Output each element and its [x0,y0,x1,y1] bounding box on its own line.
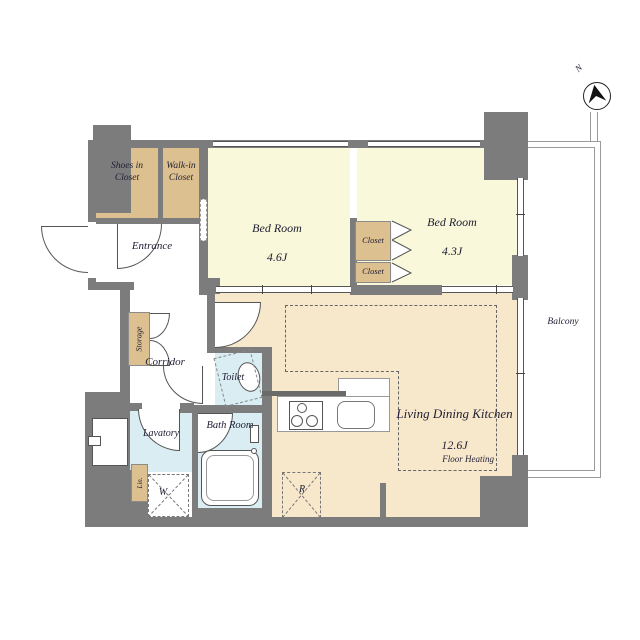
floor-heating-boundary [285,305,286,372]
slide-tick [262,285,263,294]
toilet-door-arc [163,366,203,404]
floor-plan: Closet Closet Storage Lin. [0,0,640,640]
slide-tick [311,285,312,294]
north-compass-icon [583,82,611,110]
bedroom2-size: 4.3J [392,244,512,259]
shoes-closet-label: Shoes in Closet [96,161,158,184]
window-bedroom2-balcony [517,178,524,256]
closet-lower-box: Closet [355,262,391,283]
wall-pillar-top-right [484,112,528,180]
wall-lavatory-top-right [180,403,194,413]
window-tick [516,214,525,215]
closet-upper-box: Closet [355,221,391,261]
entrance-door-arc [41,226,88,273]
wall-right-upper-block [512,255,528,300]
wall-bottom-stub [380,483,386,517]
wall-bottom [148,517,528,527]
sliding-door-bedroom2 [442,286,513,293]
stove-burner [297,403,307,413]
floor-heating-boundary [398,470,497,471]
window-bedroom1-top [213,141,348,147]
bathtub-inner [206,455,254,501]
floor-heating-boundary [285,305,497,306]
wall-wet-right [262,347,272,517]
bedroom1-name: Bed Room [217,221,337,236]
washer-label: W [147,487,179,499]
sliding-door-bedroom1 [216,286,351,293]
ldk-door-leaf [215,302,261,303]
stove-burner [306,415,318,427]
ldk-name: Living Dining Kitchen [347,406,562,422]
window-bedroom2-top [368,141,480,147]
bath-door-leaf [198,413,233,414]
kitchen-partition [262,391,346,396]
balcony-rail-link [597,112,598,142]
refrigerator-label: R [283,484,321,496]
stove-burner [291,415,303,427]
wall-left-jog [88,282,134,290]
wall-bath-bottom [192,508,266,517]
closet-lower-label: Closet [356,266,390,276]
closet-upper-label: Closet [356,235,390,245]
north-label: N [569,58,590,78]
bedroom1-size: 4.6J [217,250,337,265]
bedroom2-label: Bed Room 4.3J [392,200,512,273]
vanity-faucet-icon [88,436,101,446]
entrance-label: Entrance [104,240,200,253]
bedroom2-name: Bed Room [392,215,512,230]
wall-corner-block [480,476,528,527]
lavatory-label: Lavatory [130,428,192,440]
toilet-door-leaf [202,366,203,404]
bath-room-label: Bath Room [198,420,262,433]
wall-closets-bottom [350,285,442,295]
linen-box: Lin. [131,464,148,502]
toilet-label: Toilet [205,372,261,384]
floor-heating-label: Floor Heating [396,454,494,465]
storage-door-arc-upper [150,313,170,339]
storage-label: Storage [135,327,144,352]
slide-tick [496,285,497,294]
walk-in-closet-door [200,199,207,241]
window-tick [516,373,525,374]
bedroom1-label: Bed Room 4.6J [217,206,337,279]
entrance-door-opening [88,222,96,278]
entrance-door-leaf [41,226,88,227]
floor-heating-boundary [285,371,399,372]
linen-label: Lin. [136,477,144,488]
corridor-label: Corridor [123,356,207,369]
walk-in-closet-label: Walk-in Closet [160,161,202,184]
storage-door-leaf-upper [150,313,170,314]
balcony-label: Balcony [534,317,592,329]
bath-drain-icon [251,448,257,454]
balcony-rail-link [590,112,591,142]
ldk-size: 12.6J [347,438,562,453]
